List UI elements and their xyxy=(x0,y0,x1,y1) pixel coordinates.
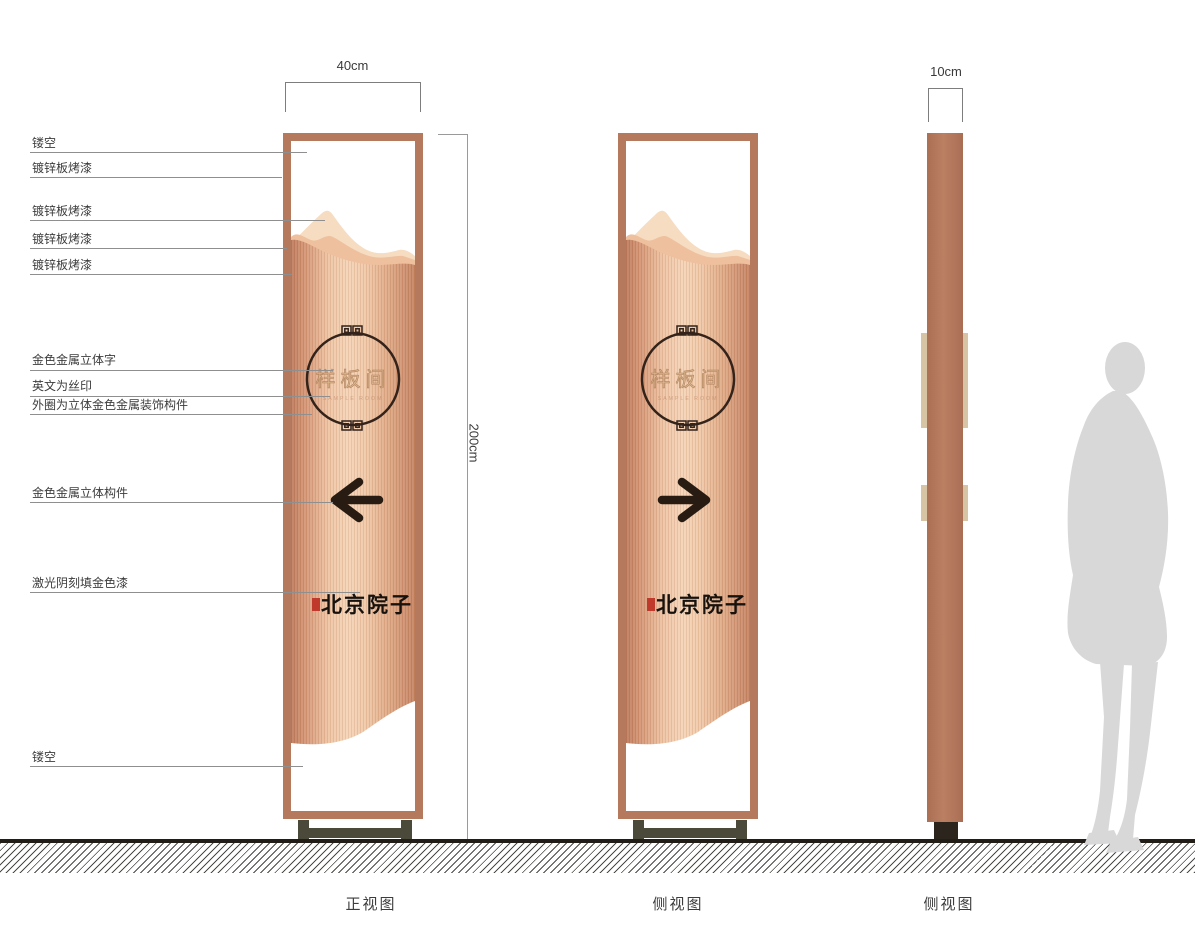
room-name-text: 样板间 xyxy=(316,368,391,391)
leader-line xyxy=(30,592,360,593)
ground-line xyxy=(0,839,1195,843)
dimension-bracket xyxy=(928,88,963,89)
signage-design-sheet: 镂空 镀锌板烤漆 镀锌板烤漆 镀锌板烤漆 镀锌板烤漆 金色金属立体字 英文为丝印… xyxy=(0,0,1195,927)
room-name-english-silkprint: SAMPLE ROOM xyxy=(658,396,719,402)
annotation-label: 激光阴刻填金色漆 xyxy=(32,576,128,590)
leader-line xyxy=(30,370,333,371)
dimension-10cm: 10cm xyxy=(928,64,964,79)
dimension-bracket xyxy=(285,82,421,83)
annotation-label: 镂空 xyxy=(32,750,56,764)
leader-line xyxy=(30,414,312,415)
seal-stamp-icon xyxy=(312,598,320,611)
brand-name-text: 北京院子 xyxy=(321,593,413,617)
caption-side-profile-view: 侧视图 xyxy=(889,893,1009,914)
annotation-label: 英文为丝印 xyxy=(32,379,92,393)
leader-line xyxy=(30,502,333,503)
leader-line xyxy=(30,220,325,221)
leader-line xyxy=(30,274,292,275)
sign-base xyxy=(635,828,745,838)
front-view-panel-graphic: 样板间 SAMPLE ROOM 北京院子 xyxy=(291,141,415,811)
human-silhouette xyxy=(1040,337,1190,857)
brand-name-text: 北京院子 xyxy=(656,593,748,617)
caption-side-view: 侧视图 xyxy=(618,893,738,914)
ground-hatch xyxy=(0,843,1195,873)
annotation-label: 金色金属立体字 xyxy=(32,353,116,367)
profile-slab xyxy=(927,133,963,822)
annotation-label: 镀锌板烤漆 xyxy=(32,258,92,272)
dimension-tick xyxy=(962,88,963,122)
annotation-label: 镀锌板烤漆 xyxy=(32,232,92,246)
annotation-label: 镀锌板烤漆 xyxy=(32,161,92,175)
side-view-sign-frame: 样板间 SAMPLE ROOM 北京院子 xyxy=(618,133,758,819)
brand-calligraphy: 北京院子 xyxy=(312,593,413,617)
front-view-sign-frame: 样板间 SAMPLE ROOM 北京院子 xyxy=(283,133,423,819)
dimension-tick xyxy=(928,88,929,122)
leader-line xyxy=(30,396,330,397)
annotation-label: 镀锌板烤漆 xyxy=(32,204,92,218)
dimension-40cm: 40cm xyxy=(285,58,420,73)
brushed-texture xyxy=(291,240,415,745)
dimension-tick xyxy=(285,82,286,112)
annotation-label: 镂空 xyxy=(32,136,56,150)
room-name-english-silkprint: SAMPLE ROOM xyxy=(323,396,384,402)
dimension-200cm: 200cm xyxy=(467,423,482,462)
leader-line xyxy=(30,766,303,767)
dimension-tick xyxy=(420,82,421,112)
brushed-texture xyxy=(626,240,750,745)
sign-base xyxy=(300,828,410,838)
dimension-height-line xyxy=(467,134,468,839)
brand-calligraphy: 北京院子 xyxy=(647,593,748,617)
side-view-panel-graphic: 样板间 SAMPLE ROOM 北京院子 xyxy=(626,141,750,811)
caption-front-view: 正视图 xyxy=(311,893,431,914)
room-name-text: 样板间 xyxy=(651,368,726,391)
dimension-tick xyxy=(438,134,467,135)
leader-line xyxy=(30,177,282,178)
leader-line xyxy=(30,248,287,249)
leader-line xyxy=(30,152,307,153)
annotation-label: 金色金属立体构件 xyxy=(32,486,128,500)
annotation-label: 外圈为立体金色金属装饰构件 xyxy=(32,398,188,412)
seal-stamp-icon xyxy=(647,598,655,611)
